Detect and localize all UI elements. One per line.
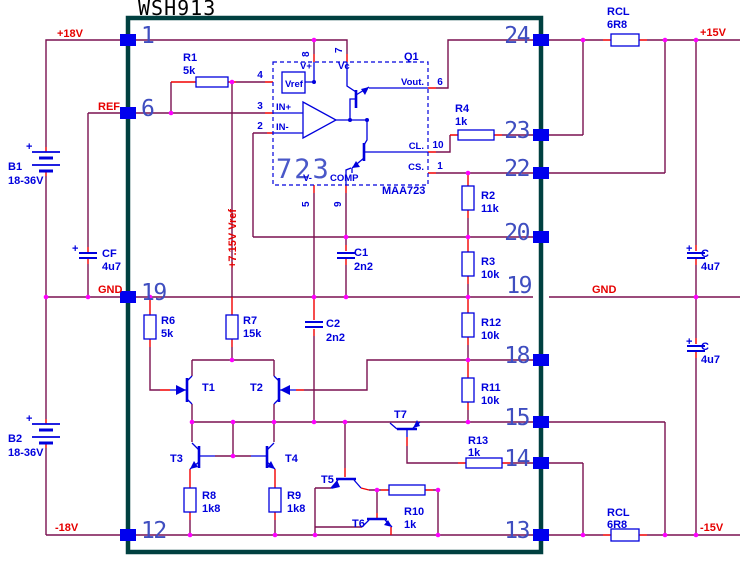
capacitor-C2 [305,322,323,327]
pin-square-14 [533,457,549,469]
c-bottom-val: 4u7 [701,354,720,366]
resistor-bodies [144,34,639,541]
opamp-triangle-icon [303,102,336,138]
pin-square-22 [533,167,549,179]
r4-ref: R4 [455,103,470,115]
ic-pin-num-9: 9 [333,201,344,207]
ic-pin-vout: Vout. [401,77,424,88]
rail-label-vref-line: +7.15V Vref [227,209,239,268]
r6-ref: R6 [161,315,175,327]
cf-val: 4u7 [102,261,121,273]
rail-label-p15v: +15V [700,27,727,39]
pin-label-24: 24 [504,23,529,49]
pin-label-23: 23 [504,118,529,144]
r13-val: 1k [468,447,481,459]
t7-label: T7 [394,409,407,421]
pin-label-22: 22 [504,156,529,182]
rcl-top-val: 6R8 [607,19,627,31]
pnp-arrow-icon [413,420,420,428]
pin-label-12: 12 [141,518,166,544]
ic-pin-num-1: 1 [437,161,443,172]
ic-pin-cl: CL. [409,141,424,152]
pin-square-15 [533,416,549,428]
battery-b1-ref: B1 [8,161,22,173]
pin-label-19-right: 19 [506,273,531,299]
r7-val: 15k [243,328,262,340]
ic-pin-num-8: 8 [301,51,312,57]
ic-part-number: MAA723 [382,185,425,197]
pin-square-1 [120,34,136,46]
battery-b1-value: 18-36V [8,175,44,187]
resistor-R13 [466,458,502,468]
rail-label-p18v: +18V [57,28,84,40]
rcl-bottom-val: 6R8 [607,519,627,531]
pin-label-18: 18 [504,343,529,369]
resistor-R3 [462,252,474,276]
battery-b2-ref: B2 [8,433,22,445]
module-title: WSH913 [138,0,216,20]
rail-label-gnd-right: GND [592,284,617,296]
resistor-R4 [458,130,494,140]
ic-pin-vminus: V- [303,173,312,184]
r6-val: 5k [161,328,174,340]
r8-ref: R8 [202,490,216,502]
r1-val: 5k [183,65,196,77]
ic-pin-num-10: 10 [432,140,444,151]
battery-b1-plus: + [26,141,32,153]
ic-pin-inminus: IN- [276,122,289,133]
pin-label-15: 15 [504,405,529,431]
cf-ref: CF [102,248,117,260]
pin-label-13: 13 [504,518,529,544]
resistor-R6 [144,315,156,339]
rail-label-m18v: -18V [55,522,79,534]
r1-ref: R1 [183,52,197,64]
c1-ref: C1 [354,247,368,259]
c1-val: 2n2 [354,261,373,273]
t3-label: T3 [170,453,183,465]
c-top-ref: C [701,248,709,260]
ic-pin-vc: Vc [338,61,350,72]
r2-ref: R2 [481,190,495,202]
r10-val: 1k [404,519,417,531]
ic-pin-num-4: 4 [257,70,263,81]
ic-vref-box-label: Vref [285,79,304,90]
t5-label: T5 [321,474,334,486]
pnp-arrow-icon [176,385,186,395]
t2-label: T2 [250,382,263,394]
battery-b2-value: 18-36V [8,447,44,459]
t4-label: T4 [285,453,299,465]
r8-val: 1k8 [202,503,220,515]
transistor-bars [187,378,417,519]
pin-square-23 [533,129,549,141]
pin-square-20 [533,231,549,243]
resistor-R1 [196,77,228,87]
pin-square-12 [120,529,136,541]
r11-ref: R11 [481,382,501,394]
ic-pin-num-6: 6 [437,77,443,88]
r13-ref: R13 [468,435,488,447]
ic-pin-vplus: V+ [300,61,312,72]
rail-label-gnd-left: GND [98,284,123,296]
c-bottom-ref: C [701,341,709,353]
ic-designator: Q1 [404,51,419,63]
r3-ref: R3 [481,256,495,268]
capacitor-C1 [337,253,355,258]
pin-label-14: 14 [504,446,529,472]
ic-pin-num-5: 5 [301,201,312,207]
r10-ref: R10 [404,506,424,518]
pin-square-6 [120,107,136,119]
r12-ref: R12 [481,317,501,329]
npn-arrow-icon [190,461,198,469]
ic-pin-num-2: 2 [257,121,263,132]
r2-val: 11k [481,203,500,215]
pin-label-19-left: 19 [141,280,166,306]
ic-transistor-bars [356,90,364,161]
ic-pin-num-7: 7 [334,47,345,53]
resistor-R11 [462,378,474,402]
ic-pin-comp: COMP [330,173,359,184]
resistor-RCL-top [611,34,639,46]
c-top-plus: + [686,243,692,255]
resistor-R2 [462,186,474,210]
pin-label-6: 6 [141,96,154,122]
t6-label: T6 [352,518,365,530]
rcl-top-ref: RCL [607,6,630,18]
r3-val: 10k [481,269,500,281]
c-top-val: 4u7 [701,261,720,273]
t1-label: T1 [202,382,215,394]
c2-val: 2n2 [326,332,345,344]
schematic-canvas: WSH913 1 6 19 12 24 23 22 20 19 18 15 14… [0,0,747,567]
capacitor-CF [79,253,97,258]
rail-label-ref: REF [98,101,120,113]
r9-val: 1k8 [287,503,305,515]
pnp-arrow-icon [280,385,290,395]
cf-plus: + [72,243,78,255]
ic-pin-inplus: IN+ [276,102,292,113]
r7-ref: R7 [243,315,257,327]
pin-square-24 [533,34,549,46]
pin-square-13 [533,529,549,541]
c-bottom-plus: + [686,336,692,348]
pin-square-18 [533,354,549,366]
pin-label-1: 1 [141,23,154,49]
resistor-R9 [269,488,281,512]
rail-label-m15v: -15V [700,522,724,534]
r12-val: 10k [481,330,500,342]
resistor-R7 [226,315,238,339]
r9-ref: R9 [287,490,301,502]
rcl-bottom-ref: RCL [607,507,630,519]
schematic-page: WSH913 1 6 19 12 24 23 22 20 19 18 15 14… [0,0,747,567]
resistor-R8 [184,488,196,512]
c2-ref: C2 [326,318,340,330]
r4-val: 1k [455,116,468,128]
resistor-R12 [462,313,474,337]
ic-pin-cs: CS. [408,162,424,173]
ic-pin-num-3: 3 [257,101,263,112]
pin-label-20: 20 [504,220,529,246]
r11-val: 10k [481,395,500,407]
resistor-R10 [389,485,425,495]
battery-b2-plus: + [26,413,32,425]
